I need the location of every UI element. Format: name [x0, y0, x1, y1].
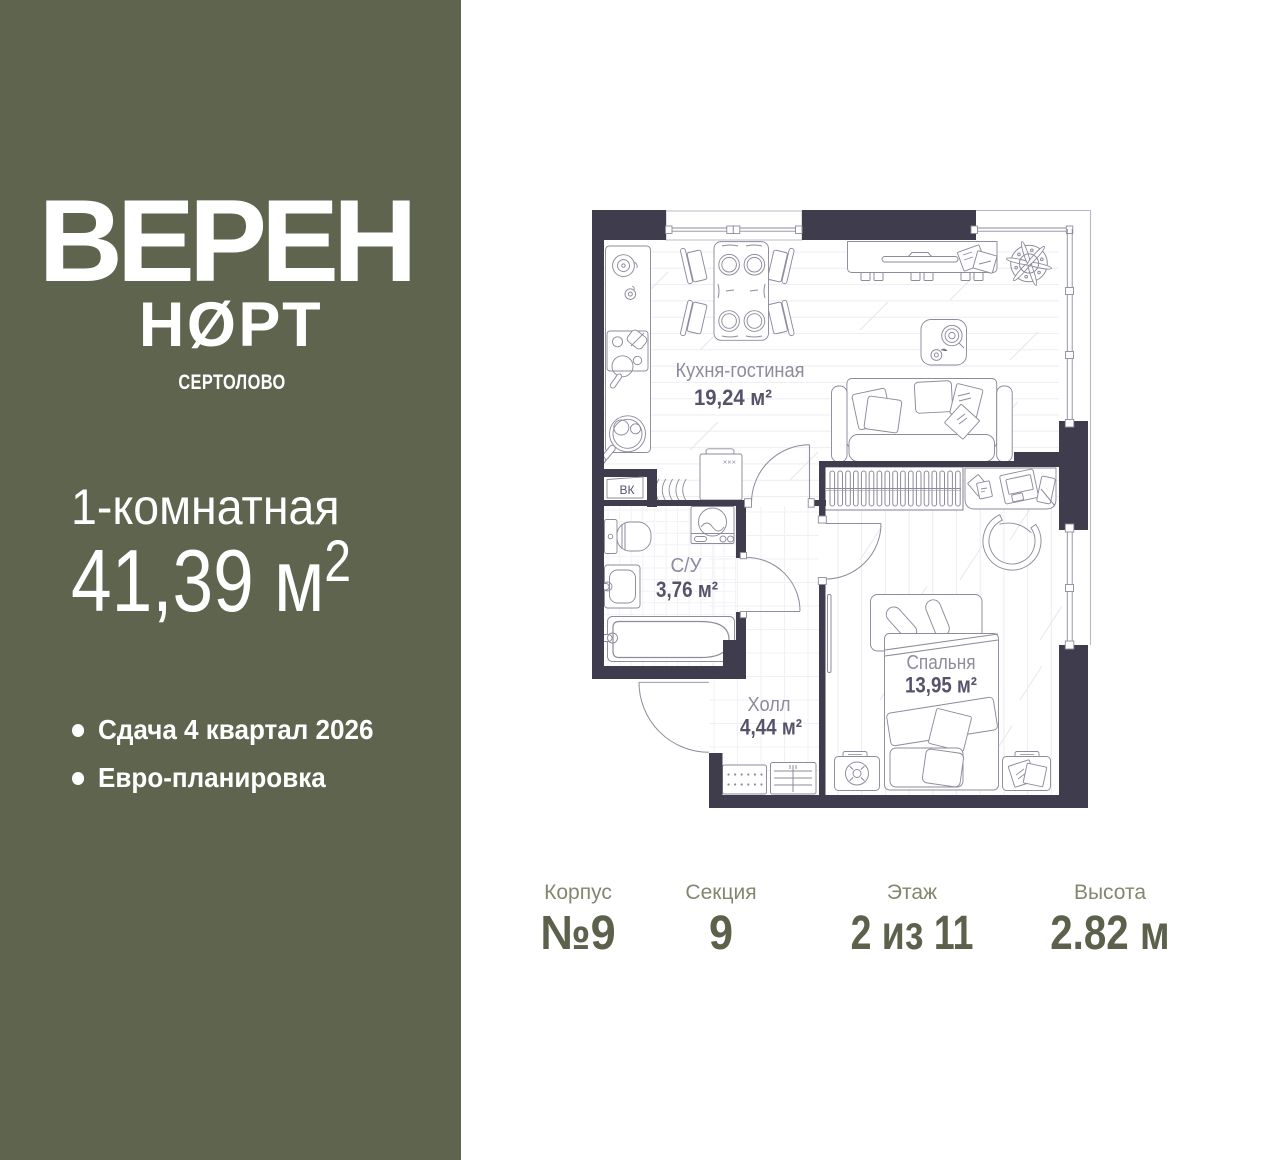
svg-text:13,95 м²: 13,95 м²	[905, 673, 977, 698]
svg-text:Холл: Холл	[748, 694, 791, 716]
svg-text:4,44 м²: 4,44 м²	[740, 715, 802, 740]
svg-text:×××: ×××	[723, 458, 736, 467]
svg-text:С/У: С/У	[671, 555, 702, 577]
svg-text:3,76 м²: 3,76 м²	[656, 577, 718, 602]
svg-text:19,24 м²: 19,24 м²	[694, 385, 772, 410]
svg-text:Кухня-гостиная: Кухня-гостиная	[676, 360, 805, 382]
svg-text:Спальня: Спальня	[907, 652, 976, 674]
svg-text:ВК: ВК	[620, 483, 635, 497]
